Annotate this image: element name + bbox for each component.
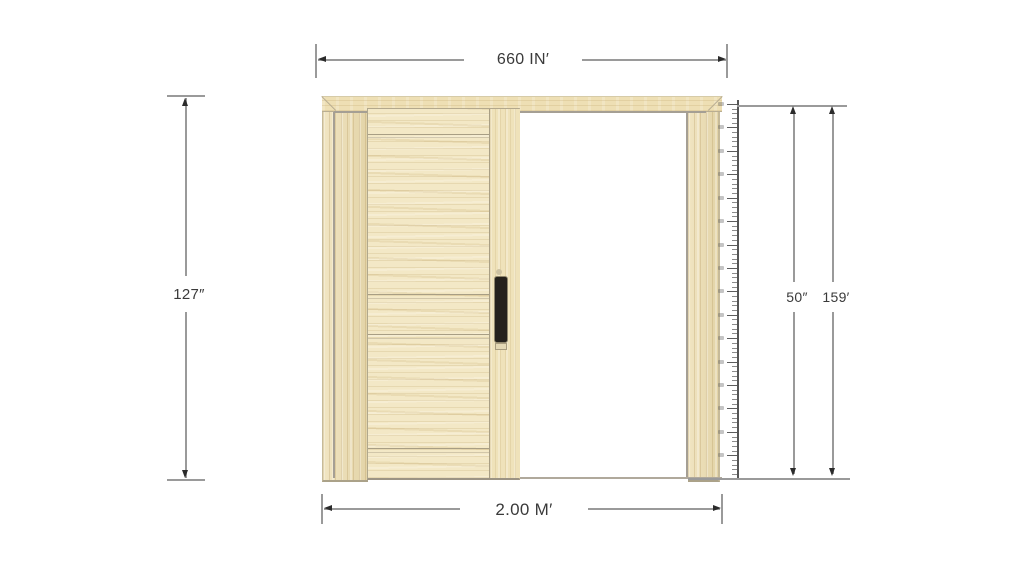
- ruler-minor-tick: [732, 165, 738, 166]
- ruler-tick-label-mark: [718, 219, 724, 223]
- right-outer-dim-line-bottom: [832, 312, 834, 474]
- ruler-tick-label-mark: [718, 125, 724, 129]
- ruler-tick-label-mark: [718, 430, 724, 434]
- ruler-tick-label-mark: [718, 266, 724, 270]
- ruler-minor-tick: [732, 324, 738, 325]
- ruler-minor-tick: [732, 188, 738, 189]
- ruler-minor-tick: [732, 132, 738, 133]
- bottom-dim-label: 2.00 M′: [460, 499, 588, 520]
- ruler-minor-tick: [732, 446, 738, 447]
- bottom-dim-arrow-left: [324, 505, 332, 511]
- door-rail-line-3: [368, 334, 489, 335]
- left-dim-arrow-up: [182, 98, 188, 106]
- ruler-tick-label-mark: [718, 102, 724, 106]
- ruler-minor-tick: [732, 216, 738, 217]
- ruler-minor-tick: [732, 156, 738, 157]
- ruler-tick-label-mark: [718, 406, 724, 410]
- ruler-tick-label-mark: [718, 360, 724, 364]
- ruler-major-tick: [727, 151, 737, 152]
- door-rail-line-1b: [368, 137, 489, 138]
- ruler-minor-tick: [732, 118, 738, 119]
- ruler-major-tick: [727, 362, 737, 363]
- ruler-major-tick: [727, 268, 737, 269]
- right-inner-dim-line-bottom: [793, 312, 795, 474]
- right-inner-dim-line-top: [793, 112, 795, 282]
- ruler-major-tick: [727, 291, 737, 292]
- door-rail-line-4: [368, 448, 489, 449]
- ruler-minor-tick: [732, 296, 738, 297]
- bottom-dim-line-left: [324, 508, 462, 510]
- ruler-major-tick: [727, 408, 737, 409]
- ruler-minor-tick: [732, 184, 738, 185]
- left-dim-label: 127″: [158, 285, 220, 304]
- top-dim-arrow-right: [718, 56, 726, 62]
- left-dim-bottom-cap: [167, 479, 205, 481]
- ruler-minor-tick: [732, 310, 738, 311]
- ruler-minor-tick: [732, 137, 738, 138]
- top-dim-label: 660 IN′: [464, 50, 582, 70]
- ruler-major-tick: [727, 385, 737, 386]
- ruler-minor-tick: [732, 301, 738, 302]
- ruler-minor-tick: [732, 329, 738, 330]
- ruler-tick-label-mark: [718, 289, 724, 293]
- ruler-minor-tick: [732, 380, 738, 381]
- ruler-minor-tick: [732, 207, 738, 208]
- ruler-major-tick: [727, 315, 737, 316]
- ruler-minor-tick: [732, 259, 738, 260]
- ruler-minor-tick: [732, 263, 738, 264]
- left-jamb-track-line: [333, 112, 335, 478]
- ruler-minor-tick: [732, 226, 738, 227]
- ruler-minor-tick: [732, 254, 738, 255]
- door-rail-line-2b: [368, 298, 489, 299]
- bottom-dim-left-cap: [321, 494, 323, 524]
- ruler-minor-tick: [732, 441, 738, 442]
- ruler-major-tick: [727, 221, 737, 222]
- ruler-minor-tick: [732, 305, 738, 306]
- ruler-major-tick: [727, 127, 737, 128]
- left-dim-line-top: [185, 98, 187, 276]
- ruler-tick-label-mark: [718, 149, 724, 153]
- ruler-minor-tick: [732, 230, 738, 231]
- ruler-minor-tick: [732, 141, 738, 142]
- ruler-minor-tick: [732, 160, 738, 161]
- ruler-minor-tick: [732, 427, 738, 428]
- ruler-minor-tick: [732, 418, 738, 419]
- ruler-minor-tick: [732, 422, 738, 423]
- ruler-minor-tick: [732, 146, 738, 147]
- door-rail-line-4b: [368, 452, 489, 453]
- door-handle-keeper: [496, 269, 502, 275]
- ruler-minor-tick: [732, 287, 738, 288]
- right-jamb-track-line: [686, 110, 688, 478]
- bottom-dim-arrow-right: [713, 505, 721, 511]
- ruler-minor-tick: [732, 249, 738, 250]
- top-dim-right-cap: [726, 44, 728, 78]
- left-door-jamb: [322, 96, 368, 482]
- ruler-minor-tick: [732, 170, 738, 171]
- ruler-minor-tick: [732, 273, 738, 274]
- ruler-major-tick: [727, 245, 737, 246]
- ruler-tick-label-mark: [718, 196, 724, 200]
- ruler-minor-tick: [732, 193, 738, 194]
- top-dim-left-cap: [315, 44, 317, 78]
- ruler-minor-tick: [732, 348, 738, 349]
- doorway-opening: [520, 113, 686, 477]
- ruler-minor-tick: [732, 376, 738, 377]
- right-dim-bottom-connector: [688, 478, 850, 480]
- ruler-minor-tick: [732, 333, 738, 334]
- ruler-minor-tick: [732, 437, 738, 438]
- ruler-minor-tick: [732, 352, 738, 353]
- right-outer-dim-arrow-up: [829, 106, 835, 114]
- door-rail-line-2: [368, 294, 489, 295]
- ruler-minor-tick: [732, 390, 738, 391]
- ruler-major-tick: [727, 338, 737, 339]
- ruler-tick-label-mark: [718, 172, 724, 176]
- ruler-minor-tick: [732, 319, 738, 320]
- ruler-minor-tick: [732, 474, 738, 475]
- right-inner-dim-arrow-up: [790, 106, 796, 114]
- ruler-minor-tick: [732, 212, 738, 213]
- right-outer-dim-arrow-down: [829, 468, 835, 476]
- ruler-minor-tick: [732, 109, 738, 110]
- ruler-tick-label-mark: [718, 243, 724, 247]
- top-dim-line-right: [578, 59, 726, 61]
- ruler-minor-tick: [732, 235, 738, 236]
- right-inner-dim-arrow-down: [790, 468, 796, 476]
- ruler-major-tick: [727, 432, 737, 433]
- ruler-minor-tick: [732, 282, 738, 283]
- door-handle: [495, 277, 507, 342]
- left-dim-top-cap: [167, 95, 205, 97]
- ruler-minor-tick: [732, 113, 738, 114]
- ruler-minor-tick: [732, 240, 738, 241]
- ruler-tick-label-mark: [718, 383, 724, 387]
- top-dim-arrow-left: [318, 56, 326, 62]
- ruler-minor-tick: [732, 343, 738, 344]
- ruler-minor-tick: [732, 179, 738, 180]
- ruler-minor-tick: [732, 413, 738, 414]
- ruler-minor-tick: [732, 371, 738, 372]
- ruler-minor-tick: [732, 277, 738, 278]
- ruler-tick-label-mark: [718, 313, 724, 317]
- left-dim-line-bottom: [185, 312, 187, 478]
- ruler-minor-tick: [732, 394, 738, 395]
- ruler-minor-tick: [732, 399, 738, 400]
- ruler-minor-tick: [732, 404, 738, 405]
- door-rail-line-3b: [368, 338, 489, 339]
- ruler-major-tick: [727, 174, 737, 175]
- ruler-minor-tick: [732, 123, 738, 124]
- ruler-minor-tick: [732, 469, 738, 470]
- sliding-door-panel: [367, 108, 520, 480]
- top-dim-line-left: [318, 59, 464, 61]
- door-elevation-diagram: 660 IN′ 127″ 2.00 M′: [0, 0, 1024, 585]
- ruler-minor-tick: [732, 460, 738, 461]
- door-rail-line-1: [368, 134, 489, 135]
- ruler-minor-tick: [732, 357, 738, 358]
- ruler-major-tick: [727, 104, 737, 105]
- right-door-jamb: [688, 96, 720, 482]
- ruler-tick-label-mark: [718, 336, 724, 340]
- bottom-dim-right-cap: [721, 494, 723, 524]
- left-dim-arrow-down: [182, 470, 188, 478]
- ruler-minor-tick: [732, 465, 738, 466]
- bottom-dim-line-right: [582, 508, 720, 510]
- door-handle-base: [495, 343, 507, 350]
- ruler-major-tick: [727, 455, 737, 456]
- right-outer-dim-label: 159′: [811, 288, 861, 306]
- measurement-ruler: [737, 100, 739, 479]
- ruler-minor-tick: [732, 366, 738, 367]
- right-outer-dim-line-top: [832, 112, 834, 282]
- ruler-minor-tick: [732, 202, 738, 203]
- ruler-tick-label-mark: [718, 453, 724, 457]
- ruler-major-tick: [727, 198, 737, 199]
- ruler-minor-tick: [732, 451, 738, 452]
